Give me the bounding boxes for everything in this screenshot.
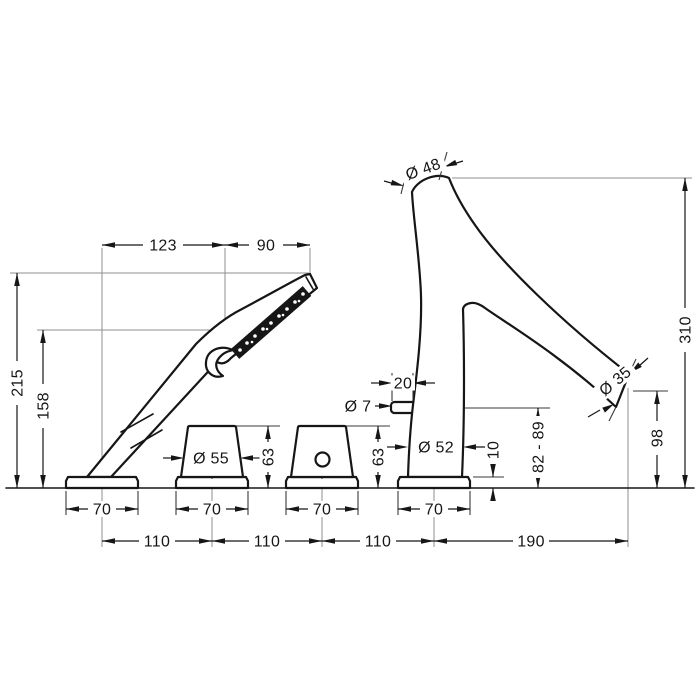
faucet-body <box>391 176 629 477</box>
dim-63-left: 63 <box>260 442 278 472</box>
dim-190-label: 190 <box>517 534 545 551</box>
dim-63-left-label: 63 <box>261 448 278 466</box>
dim-d7: Ø 7 <box>341 398 375 416</box>
dim-70-4: 70 <box>420 501 448 519</box>
dim-110-3: 110 <box>360 533 396 551</box>
dim-190: 190 <box>513 533 549 551</box>
dim-10: 10 <box>485 436 503 464</box>
dim-110-2: 110 <box>249 533 285 551</box>
technical-drawing-canvas: 123 90 215 158 Ø 48 310 Ø 35 98 20 Ø 7 Ø… <box>0 0 700 700</box>
base-plate <box>66 477 138 488</box>
dim-110-1-label: 110 <box>144 534 170 551</box>
dim-82-89-label: 82 - 89 <box>531 421 548 473</box>
dim-70-2-label: 70 <box>203 502 221 519</box>
dim-63-right-label: 63 <box>371 448 388 466</box>
dim-d55-label: Ø 55 <box>193 451 229 468</box>
dim-90-label: 90 <box>257 238 275 255</box>
dim-123-label: 123 <box>149 238 177 255</box>
dim-82-89: 82 - 89 <box>530 416 548 478</box>
dim-70-3-label: 70 <box>313 502 331 519</box>
dim-63-right: 63 <box>370 442 388 472</box>
dim-70-4-label: 70 <box>425 502 443 519</box>
dim-90: 90 <box>249 237 283 255</box>
dim-310: 310 <box>677 308 695 352</box>
dim-158-label: 158 <box>36 392 53 420</box>
dim-d7-label: Ø 7 <box>345 399 372 416</box>
dim-123: 123 <box>143 237 183 255</box>
dim-110-1: 110 <box>139 533 175 551</box>
dim-d55: Ø 55 <box>188 450 234 468</box>
dim-10-label: 10 <box>486 441 503 459</box>
faucet-dimension-drawing: 123 90 215 158 Ø 48 310 Ø 35 98 20 Ø 7 Ø… <box>0 0 700 700</box>
dim-70-3: 70 <box>308 501 336 519</box>
dim-20: 20 <box>391 376 415 393</box>
dim-d52: Ø 52 <box>413 439 459 457</box>
dim-110-3-label: 110 <box>365 534 391 551</box>
dim-215-label: 215 <box>10 369 27 397</box>
diverter-button <box>316 453 330 467</box>
dim-20-label: 20 <box>394 376 412 393</box>
spout-outline <box>408 176 629 477</box>
dim-70-1-label: 70 <box>93 502 111 519</box>
dim-98-label: 98 <box>650 429 667 447</box>
dim-70-1: 70 <box>88 501 116 519</box>
dim-215: 215 <box>9 361 27 405</box>
dim-310-label: 310 <box>678 316 695 344</box>
dim-70-2: 70 <box>198 501 226 519</box>
dim-110-2-label: 110 <box>254 534 280 551</box>
dim-98: 98 <box>649 421 667 455</box>
dim-d52-label: Ø 52 <box>418 440 454 457</box>
dim-158: 158 <box>35 384 53 428</box>
base-plate <box>398 477 470 488</box>
